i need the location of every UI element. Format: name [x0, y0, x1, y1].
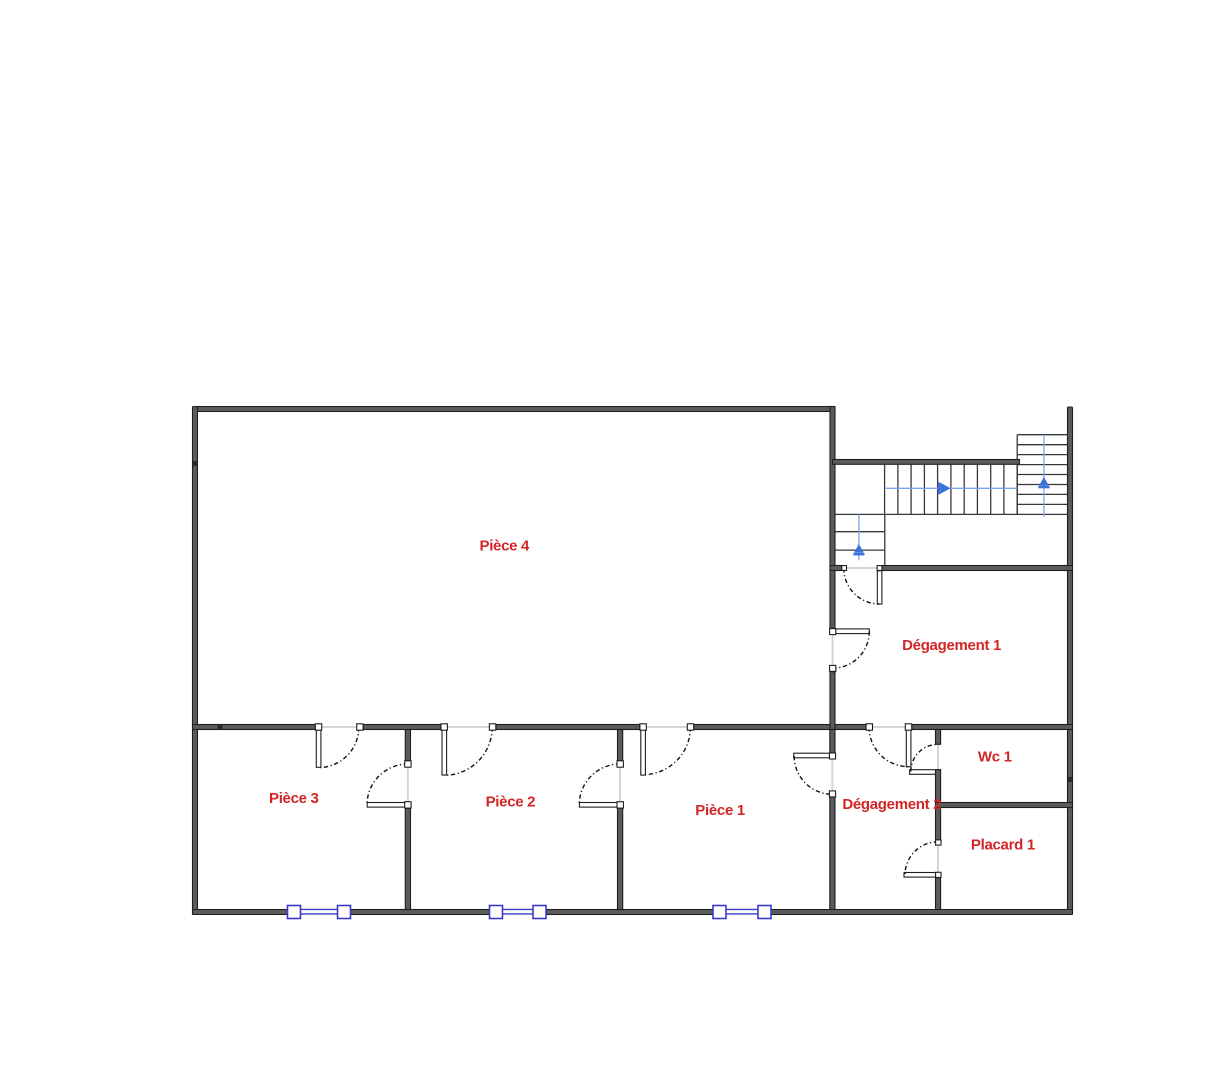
- svg-text:Wc 1: Wc 1: [978, 749, 1012, 766]
- svg-text:Pièce 2: Pièce 2: [486, 794, 536, 811]
- svg-text:Pièce 3: Pièce 3: [269, 790, 319, 807]
- svg-text:Dégagement 1: Dégagement 1: [902, 637, 1001, 654]
- svg-text:Pièce 1: Pièce 1: [695, 802, 745, 819]
- svg-text:Placard 1: Placard 1: [971, 836, 1035, 853]
- svg-text:Pièce 4: Pièce 4: [479, 538, 530, 555]
- svg-text:Dégagement 2: Dégagement 2: [842, 796, 941, 813]
